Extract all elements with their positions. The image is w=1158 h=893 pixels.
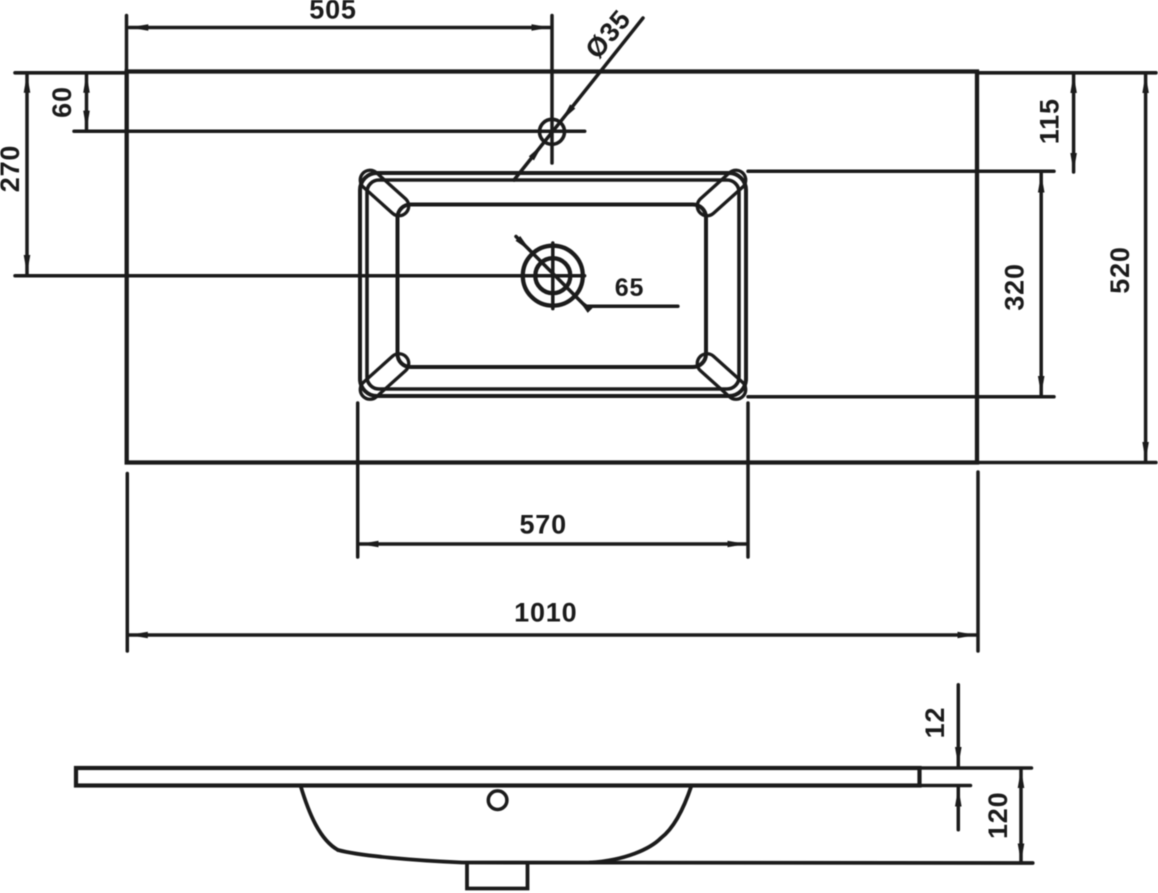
- svg-text:65: 65: [615, 274, 644, 302]
- svg-text:60: 60: [47, 86, 77, 118]
- svg-text:1010: 1010: [514, 598, 577, 628]
- svg-text:320: 320: [1000, 263, 1030, 310]
- svg-text:115: 115: [1034, 98, 1064, 144]
- svg-text:12: 12: [920, 707, 950, 739]
- svg-text:270: 270: [0, 145, 25, 192]
- svg-text:520: 520: [1105, 246, 1135, 293]
- svg-text:570: 570: [519, 510, 566, 540]
- svg-text:120: 120: [983, 792, 1013, 839]
- svg-text:505: 505: [309, 0, 356, 24]
